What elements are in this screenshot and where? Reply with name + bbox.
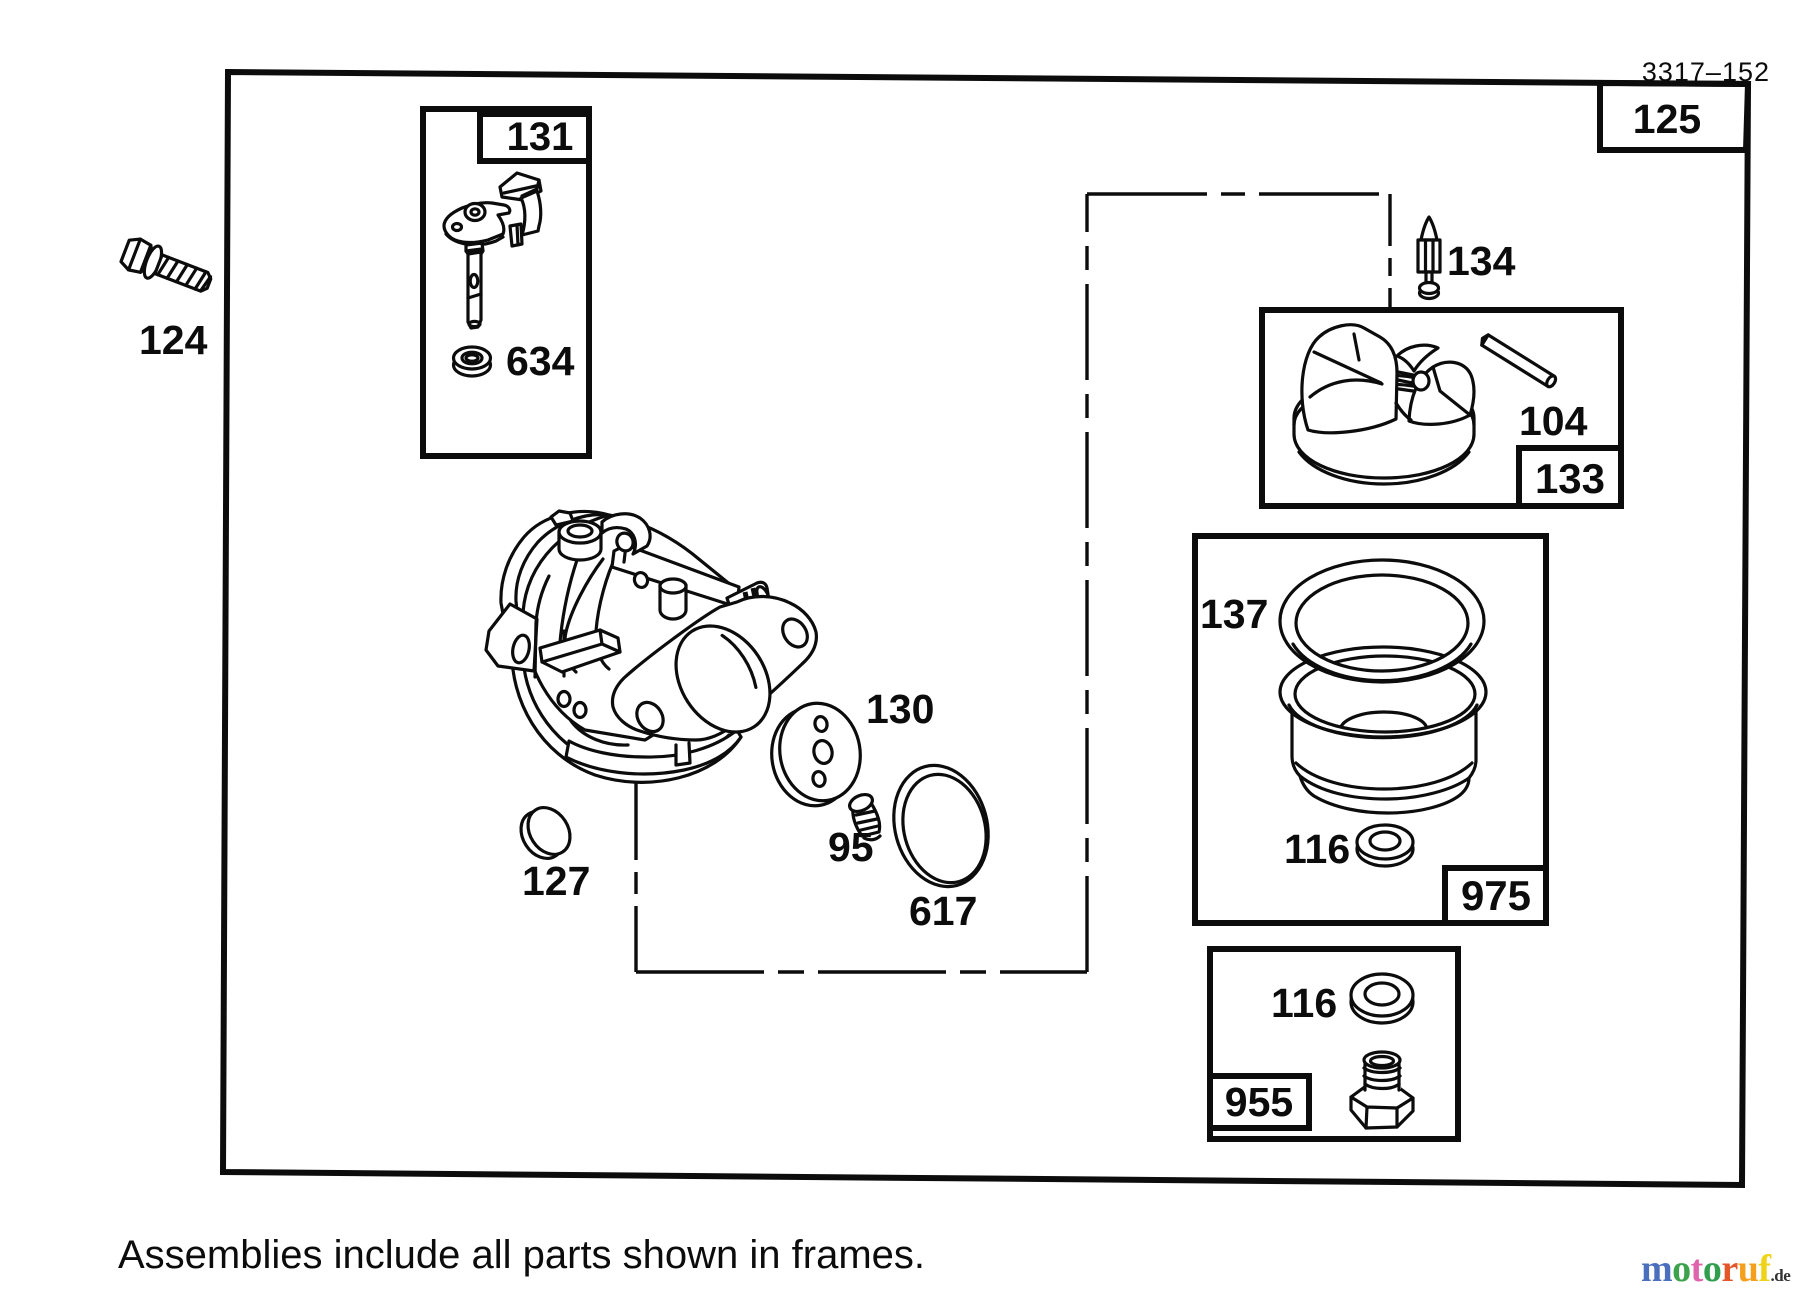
svg-text:125: 125 bbox=[1633, 96, 1701, 142]
svg-text:104: 104 bbox=[1519, 398, 1588, 444]
svg-text:motoruf.de: motoruf.de bbox=[1641, 1248, 1791, 1290]
svg-text:Assemblies include all parts s: Assemblies include all parts shown in fr… bbox=[118, 1233, 925, 1277]
svg-text:130: 130 bbox=[866, 686, 934, 732]
svg-text:124: 124 bbox=[139, 317, 208, 363]
svg-text:131: 131 bbox=[507, 115, 574, 159]
svg-text:133: 133 bbox=[1535, 455, 1605, 502]
svg-text:116: 116 bbox=[1271, 980, 1337, 1026]
svg-text:617: 617 bbox=[909, 888, 977, 934]
svg-text:137: 137 bbox=[1200, 591, 1268, 637]
svg-text:975: 975 bbox=[1461, 872, 1531, 919]
svg-text:634: 634 bbox=[506, 338, 575, 384]
svg-text:127: 127 bbox=[522, 858, 590, 904]
svg-text:116: 116 bbox=[1284, 826, 1350, 872]
svg-text:95: 95 bbox=[828, 824, 874, 870]
svg-text:955: 955 bbox=[1225, 1079, 1293, 1125]
svg-text:134: 134 bbox=[1447, 238, 1516, 284]
